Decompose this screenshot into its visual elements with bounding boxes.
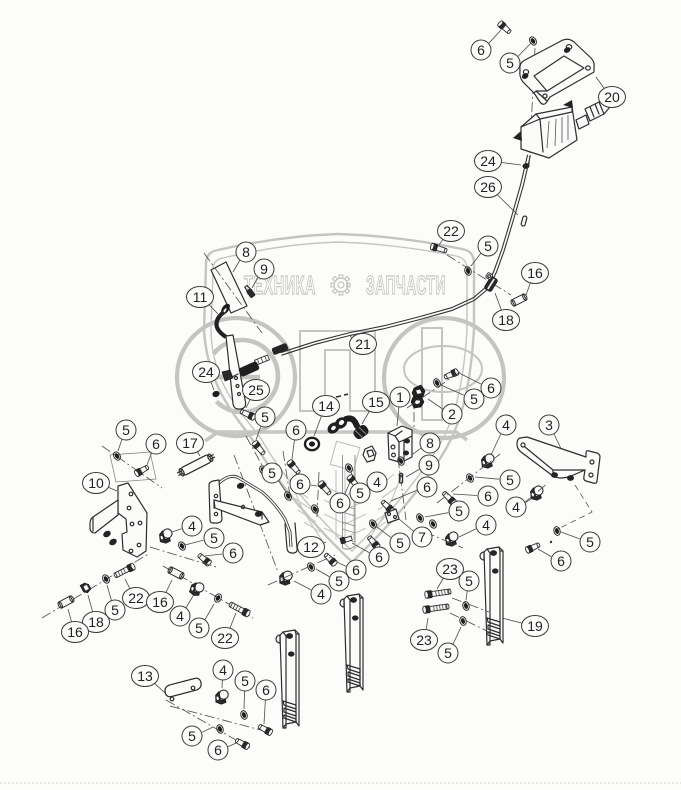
svg-text:10: 10	[88, 475, 104, 491]
svg-text:5: 5	[122, 422, 130, 438]
svg-text:ЗАПЧАСТИ: ЗАПЧАСТИ	[366, 270, 446, 300]
svg-text:5: 5	[111, 602, 119, 618]
svg-text:5: 5	[455, 503, 463, 519]
svg-text:5: 5	[506, 55, 514, 71]
svg-text:6: 6	[229, 545, 237, 561]
svg-text:6: 6	[296, 476, 304, 492]
svg-text:5: 5	[210, 530, 218, 546]
svg-text:17: 17	[182, 435, 198, 451]
svg-text:13: 13	[137, 668, 153, 684]
svg-text:15: 15	[368, 394, 384, 410]
svg-text:6: 6	[262, 682, 270, 698]
svg-text:16: 16	[527, 265, 543, 281]
svg-text:6: 6	[484, 488, 492, 504]
svg-text:7: 7	[418, 529, 426, 545]
svg-text:4: 4	[317, 586, 325, 602]
svg-text:23: 23	[416, 632, 432, 648]
svg-text:5: 5	[241, 673, 249, 689]
svg-text:12: 12	[303, 539, 319, 555]
svg-text:5: 5	[261, 409, 269, 425]
svg-text:19: 19	[527, 618, 543, 634]
svg-text:5: 5	[470, 391, 478, 407]
svg-text:4: 4	[188, 518, 196, 534]
svg-text:16: 16	[152, 594, 168, 610]
svg-text:6: 6	[214, 742, 222, 758]
svg-text:5: 5	[396, 535, 404, 551]
svg-text:24: 24	[198, 364, 214, 380]
svg-text:5: 5	[484, 238, 492, 254]
svg-text:6: 6	[557, 553, 565, 569]
svg-text:2: 2	[448, 406, 456, 422]
svg-text:22: 22	[443, 223, 459, 239]
svg-text:5: 5	[506, 472, 514, 488]
svg-text:6: 6	[487, 380, 495, 396]
svg-text:8: 8	[242, 244, 250, 260]
svg-text:5: 5	[586, 534, 594, 550]
svg-text:6: 6	[375, 549, 383, 565]
svg-text:4: 4	[482, 517, 490, 533]
svg-text:25: 25	[248, 382, 264, 398]
svg-text:5: 5	[335, 573, 343, 589]
svg-text:26: 26	[480, 179, 496, 195]
svg-text:24: 24	[480, 153, 496, 169]
svg-text:4: 4	[502, 417, 510, 433]
svg-text:4: 4	[512, 499, 520, 515]
svg-text:5: 5	[465, 573, 473, 589]
svg-text:14: 14	[318, 398, 334, 414]
svg-text:20: 20	[604, 89, 620, 105]
svg-text:11: 11	[193, 289, 208, 305]
svg-text:6: 6	[477, 42, 485, 58]
svg-text:6: 6	[352, 562, 360, 578]
svg-text:6: 6	[292, 422, 300, 438]
svg-text:23: 23	[442, 561, 458, 577]
svg-text:6: 6	[152, 436, 160, 452]
svg-text:6: 6	[336, 495, 344, 511]
svg-text:5: 5	[444, 645, 452, 661]
svg-text:18: 18	[88, 614, 104, 630]
svg-text:4: 4	[176, 608, 184, 624]
svg-text:16: 16	[67, 624, 83, 640]
svg-text:21: 21	[355, 336, 371, 352]
svg-text:18: 18	[498, 312, 514, 328]
svg-text:8: 8	[426, 435, 434, 451]
svg-text:9: 9	[260, 261, 268, 277]
svg-text:4: 4	[219, 662, 227, 678]
svg-text:9: 9	[425, 457, 433, 473]
svg-text:5: 5	[268, 465, 276, 481]
svg-text:6: 6	[423, 479, 431, 495]
svg-text:5: 5	[356, 485, 364, 501]
svg-text:22: 22	[128, 590, 144, 606]
svg-text:5: 5	[195, 620, 203, 636]
svg-text:1: 1	[396, 389, 404, 405]
svg-text:4: 4	[373, 474, 381, 490]
svg-text:3: 3	[545, 417, 553, 433]
svg-text:5: 5	[188, 728, 196, 744]
svg-text:22: 22	[217, 630, 233, 646]
